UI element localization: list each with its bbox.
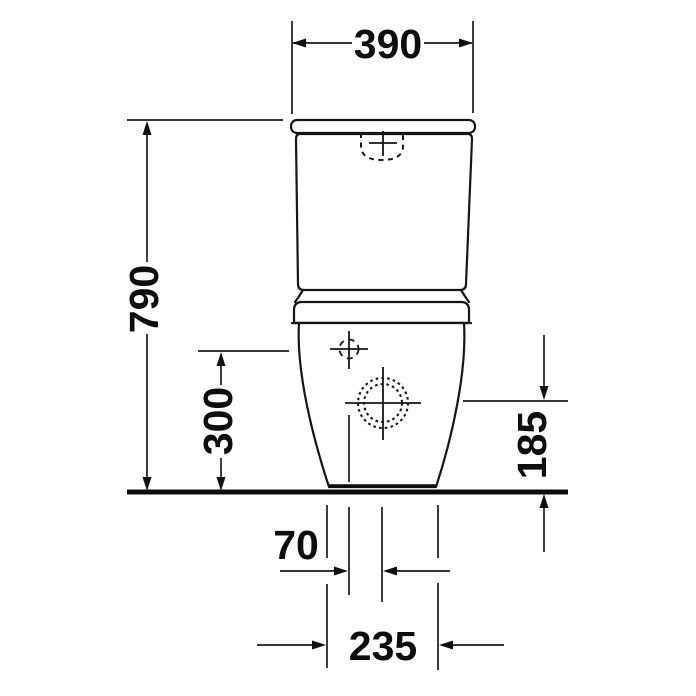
- arrowhead-right: [334, 567, 348, 576]
- arrowhead-left: [383, 567, 397, 576]
- arrowhead-up: [143, 121, 152, 135]
- cistern-neck-left: [295, 290, 303, 302]
- arrowhead-down: [143, 477, 152, 491]
- arrowhead-left: [292, 39, 306, 48]
- arrowhead-down: [540, 386, 549, 400]
- dim-supply-offset-label: 70: [273, 522, 319, 568]
- dim-base-width-label: 235: [349, 623, 417, 669]
- toilet-figure: [127, 120, 568, 492]
- dimension-outlet-height: 185: [463, 335, 568, 552]
- cistern-body: [296, 134, 472, 290]
- dimension-cistern-width: 390: [292, 21, 473, 114]
- technical-drawing-canvas: 390 790 300 185: [0, 0, 696, 696]
- pedestal: [299, 323, 465, 487]
- seat-band: [294, 302, 469, 323]
- dimension-supply-height: 300: [195, 351, 289, 491]
- arrowhead-left: [439, 641, 453, 650]
- dim-supply-height-label: 300: [195, 387, 241, 455]
- toilet-dimension-diagram: 390 790 300 185: [0, 0, 696, 696]
- dim-total-height-label: 790: [121, 265, 167, 333]
- arrowhead-down: [217, 477, 226, 491]
- arrowhead-right: [312, 641, 326, 650]
- arrowhead-up: [540, 494, 549, 508]
- dim-cistern-width-label: 390: [354, 21, 422, 67]
- cistern-neck-right: [461, 290, 469, 302]
- arrowhead-right: [459, 39, 473, 48]
- arrowhead-up: [217, 352, 226, 366]
- dim-outlet-height-label: 185: [509, 411, 555, 479]
